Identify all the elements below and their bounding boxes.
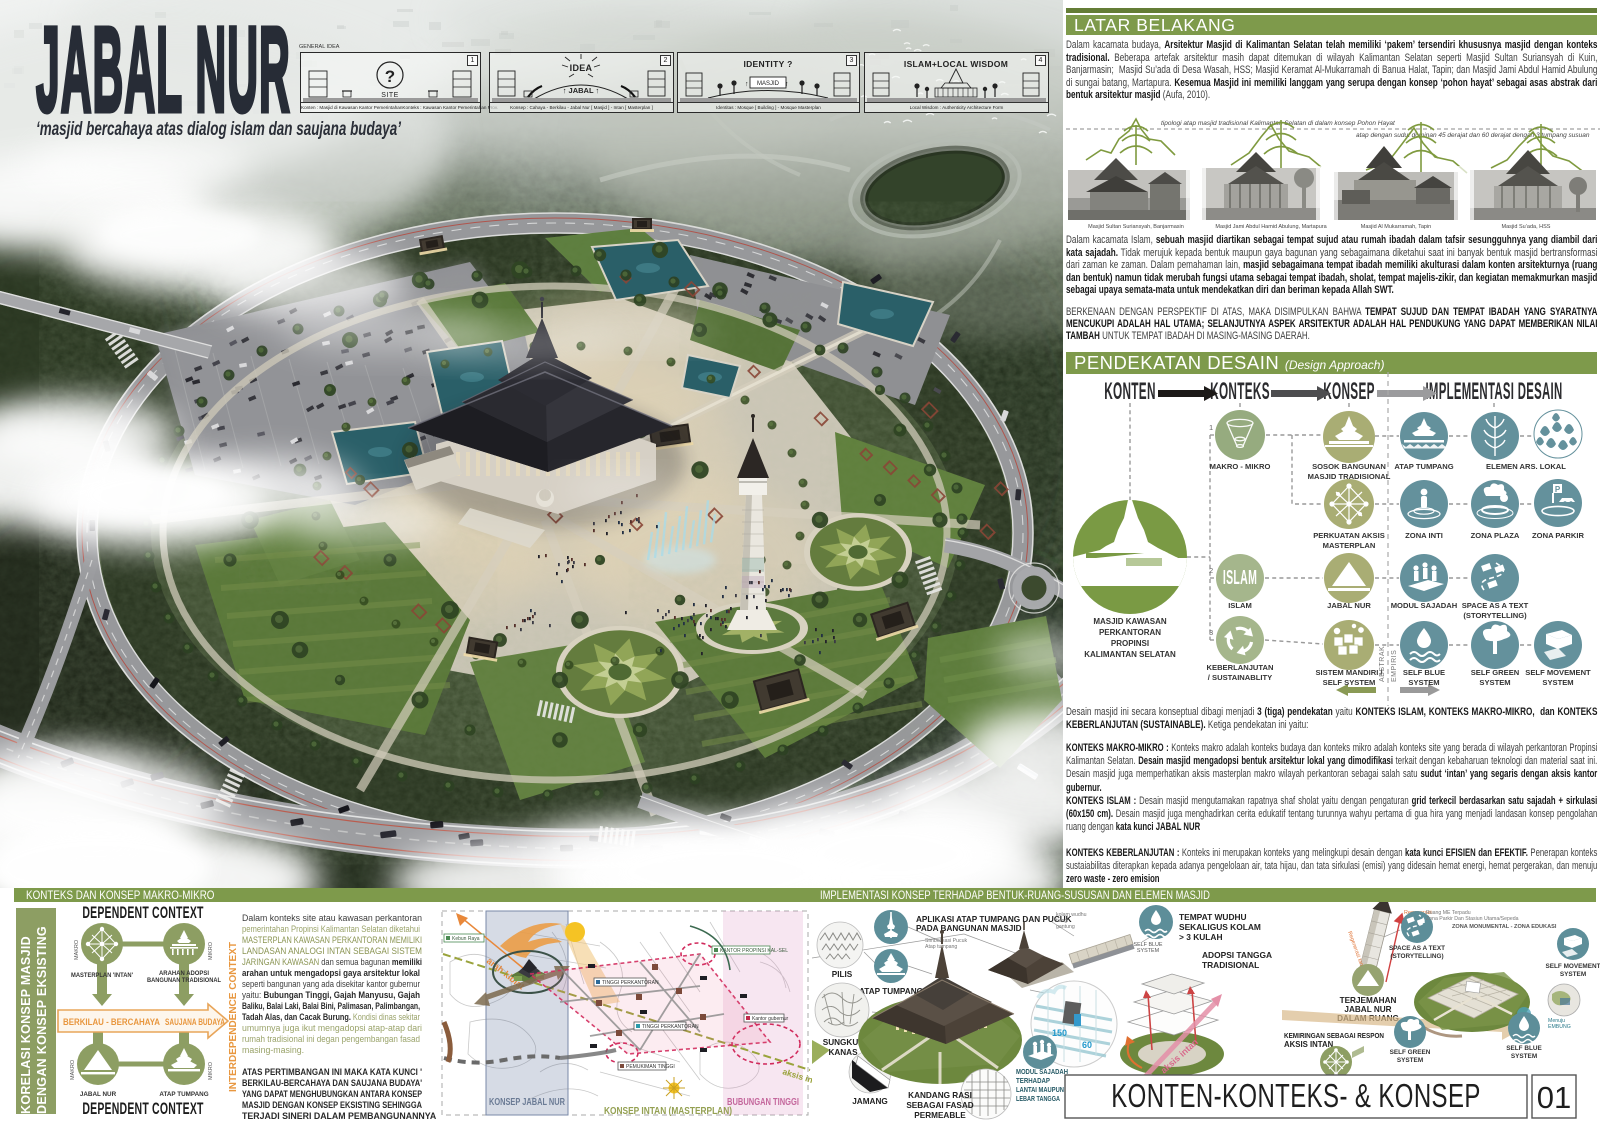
svg-text:3: 3 [1209,628,1213,637]
svg-text:KONTEN: KONTEN [1104,377,1156,404]
svg-text:SISTEM MANDIRI /: SISTEM MANDIRI / [1315,668,1383,677]
svg-text:JABAL NUR: JABAL NUR [80,1091,117,1098]
svg-text:MASJID KAWASAN: MASJID KAWASAN [1093,617,1167,626]
svg-text:SYSTEM: SYSTEM [1397,1057,1423,1064]
svg-text:arahan untuk mengadopsi gaya a: arahan untuk mengadopsi gaya arsitektur … [242,968,420,978]
svg-text:ISLAM: ISLAM [1223,566,1257,589]
svg-text:TEMPAT WUDHU: TEMPAT WUDHU [1179,912,1247,922]
svg-text:EMBUNG: EMBUNG [1548,1024,1571,1030]
svg-text:IMPLEMENTASI DESAIN: IMPLEMENTASI DESAIN [1425,377,1562,404]
svg-text:BERKILAU-BERCAHAYA DAN SAUJANA: BERKILAU-BERCAHAYA DAN SAUJANA BUDAYA' [242,1078,422,1088]
svg-text:LEBAR TANGGA: LEBAR TANGGA [1016,1096,1060,1103]
svg-text:BERKILAU - BERCAHAYA: BERKILAU - BERCAHAYA [63,1017,160,1028]
svg-text:01: 01 [1537,1080,1571,1115]
svg-text:KONTEN-KONTEKS- & KONSEP: KONTEN-KONTEKS- & KONSEP [1111,1078,1481,1115]
svg-text:KONSEP JABAL NUR: KONSEP JABAL NUR [489,1097,566,1108]
svg-text:TRADISIONAL: TRADISIONAL [1202,960,1259,970]
svg-text:MASTERPLAN: MASTERPLAN [1323,541,1376,550]
svg-text:SELF BLUE: SELF BLUE [1403,668,1445,677]
svg-text:SELF SYSTEM: SELF SYSTEM [1323,678,1376,687]
svg-text:yaitu: Bubungan Tinggi, Gajah: yaitu: Bubungan Tinggi, Gajah Manyusu, G… [242,990,420,1000]
svg-text:MAKRO - MIKRO: MAKRO - MIKRO [1210,462,1271,471]
svg-text:ISLAM+LOCAL WISDOM: ISLAM+LOCAL WISDOM [904,59,1008,69]
svg-text:MAKRO: MAKRO [74,939,80,960]
svg-text:Kantor gubernur: Kantor gubernur [752,1016,788,1022]
svg-text:KORELASI KONSEP MASJID: KORELASI KONSEP MASJID [19,936,33,1114]
svg-text:SELF MOVEMENT: SELF MOVEMENT [1525,668,1591,677]
svg-text:ATAS PERTIMBANGAN INI MAKA KAT: ATAS PERTIMBANGAN INI MAKA KATA KUNCI ' [242,1067,422,1077]
svg-text:ZONA INTI: ZONA INTI [1405,531,1443,540]
svg-text:Tadah Alas, dan Cacak Burung.: Tadah Alas, dan Cacak Burung. Kondisi di… [242,1012,420,1022]
svg-text:SEKALIGUS KOLAM: SEKALIGUS KOLAM [1179,922,1261,932]
svg-text:SYSTEM: SYSTEM [1560,971,1586,978]
svg-text:rumah tradisional ini degan pe: rumah tradisional ini degan pengembangan… [242,1034,420,1044]
svg-text:> 3 KULAH: > 3 KULAH [1179,932,1223,942]
svg-text:BUBUNGAN TINGGI: BUBUNGAN TINGGI [727,1097,799,1108]
svg-text:PILIS: PILIS [832,970,853,979]
svg-text:SPACE AS A TEXT: SPACE AS A TEXT [1389,945,1445,952]
svg-text:PROPINSI: PROPINSI [1111,639,1149,648]
svg-text:(STORYTELLING): (STORYTELLING) [1390,953,1443,960]
svg-text:SELF GREEN: SELF GREEN [1390,1049,1431,1056]
svg-text:SYSTEM: SYSTEM [1542,678,1573,687]
svg-text:IDEA: IDEA [570,63,593,73]
svg-text:ZONA MONUMENTAL - ZONA EDUKASI: ZONA MONUMENTAL - ZONA EDUKASI [1452,924,1557,930]
svg-text:ATAP TUMPANG: ATAP TUMPANG [859,987,923,996]
svg-text:SELF MOVEMENT: SELF MOVEMENT [1545,963,1600,970]
svg-text:KANAS: KANAS [828,1048,858,1057]
svg-text:EMPIRIS: EMPIRIS [1391,650,1398,682]
svg-text:KONSEP: KONSEP [1323,377,1375,404]
svg-text:LANTAI MAUPUN: LANTAI MAUPUN [1016,1087,1064,1094]
svg-text:JAMANG: JAMANG [852,1097,887,1106]
svg-text:JABAL NUR: JABAL NUR [1344,1005,1391,1014]
svg-text:KANTOR PROPINSI KAL-SEL: KANTOR PROPINSI KAL-SEL [720,948,788,954]
svg-text:SYSTEM: SYSTEM [1408,678,1439,687]
svg-text:JARINGAN KAWASAN dan semua bag: JARINGAN KAWASAN dan semua bagunan memil… [242,957,422,967]
svg-text:ELEMEN ARS. LOKAL: ELEMEN ARS. LOKAL [1486,462,1566,471]
svg-text:APLIKASI ATAP TUMPANG DAN PUCU: APLIKASI ATAP TUMPANG DAN PUCUK [916,915,1072,924]
svg-text:(STORYTELLING): (STORYTELLING) [1463,611,1527,620]
svg-text:PADA BANGUNAN MASJID: PADA BANGUNAN MASJID [916,924,1022,933]
svg-text:Masjid Sultan Suriansyah, Banj: Masjid Sultan Suriansyah, Banjarmasin [1088,224,1184,230]
svg-text:Masjid Jami Abdul Hamid Abulun: Masjid Jami Abdul Hamid Abulung, Martapu… [1215,224,1327,230]
svg-text:JABAL NUR: JABAL NUR [1327,601,1371,610]
svg-text:PERMEABLE: PERMEABLE [914,1111,966,1120]
svg-text:SELF GREEN: SELF GREEN [1471,668,1520,677]
svg-text:pemerintahan Propinsi Kalimant: pemerintahan Propinsi Kalimantan Selatan… [242,924,420,934]
svg-text:ADOPSI TANGGA: ADOPSI TANGGA [1202,950,1272,960]
svg-text:seperti bangunan yang ada dise: seperti bangunan yang ada disekitar kant… [242,979,420,989]
svg-text:ZONA PLAZA: ZONA PLAZA [1471,531,1520,540]
svg-text:MASJID DENGAN KONSEP EKSISTING: MASJID DENGAN KONSEP EKSISTING SEHINGGA [242,1100,423,1110]
svg-text:umumnya juga ikut mengadopsi a: umumnya juga ikut mengadopsi atap-atap d… [242,1023,422,1033]
svg-text:DENGAN KONSEP EKSISTING: DENGAN KONSEP EKSISTING [35,926,49,1114]
svg-text:gantung: gantung [1056,924,1075,930]
svg-text:MASTERPLAN KAWASAN PERKANTORAN: MASTERPLAN KAWASAN PERKANTORAN MEMILIKI [242,935,422,945]
svg-text:ATAP TUMPANG: ATAP TUMPANG [159,1091,208,1098]
svg-text:SPACE AS A TEXT: SPACE AS A TEXT [1462,601,1529,610]
svg-text:150: 150 [1052,1028,1067,1038]
svg-text:SUNGKUL: SUNGKUL [823,1038,863,1047]
svg-text:AKSIS INTAN: AKSIS INTAN [1284,1040,1334,1049]
svg-text:IDENTITY ?: IDENTITY ? [743,59,792,69]
svg-text:Baliku, Balai Laki, Balai Bini: Baliku, Balai Laki, Balai Bini, Palimasa… [242,1001,420,1011]
svg-text:ISLAM: ISLAM [1228,601,1252,610]
svg-text:MASJID: MASJID [757,81,780,87]
svg-text:↑: ↑ [785,81,789,88]
svg-text:2: 2 [1209,566,1213,575]
svg-text:Kebun Raya: Kebun Raya [452,936,480,942]
svg-text:ZONA PARKIR: ZONA PARKIR [1532,531,1584,540]
svg-text:YANG DAPAT MENGHUBUNGKAN ANTAR: YANG DAPAT MENGHUBUNGKAN ANTARA KONSEP [242,1089,422,1099]
svg-text:atap dengan sudut dominan 45 d: atap dengan sudut dominan 45 derajat dan… [1356,132,1590,139]
svg-text:?: ? [385,67,395,86]
svg-text:DEPENDENT CONTEXT: DEPENDENT CONTEXT [82,902,203,921]
svg-text:MAKRO: MAKRO [70,1059,76,1080]
svg-text:INTERDEPENDENCE CONTEXT: INTERDEPENDENCE CONTEXT [227,941,239,1092]
svg-text:PEMUKIMAN TINGGI: PEMUKIMAN TINGGI [626,1064,675,1070]
svg-text:TERJEMAHAN: TERJEMAHAN [1340,996,1397,1005]
svg-text:SYSTEM: SYSTEM [1511,1053,1537,1060]
svg-text:PERKUATAN AKSIS: PERKUATAN AKSIS [1313,531,1385,540]
svg-text:DEPENDENT CONTEXT: DEPENDENT CONTEXT [82,1098,203,1117]
svg-text:MIKRO: MIKRO [208,941,214,960]
svg-text:↑ JABAL ↑: ↑ JABAL ↑ [563,86,600,95]
svg-text:SITE: SITE [381,92,399,99]
svg-text:SYSTEM: SYSTEM [1137,948,1160,954]
svg-text:SYSTEM: SYSTEM [1479,678,1510,687]
svg-text:MODUL SAJADAH: MODUL SAJADAH [1391,601,1458,610]
svg-text:/ SUSTAINABLITY: / SUSTAINABLITY [1208,673,1272,682]
svg-text:ARAHAN ADOPSI: ARAHAN ADOPSI [159,970,209,977]
svg-text:ATAP TUMPANG: ATAP TUMPANG [1394,462,1453,471]
svg-text:Masjid Al Mukarramah, Tapin: Masjid Al Mukarramah, Tapin [1361,224,1432,230]
svg-text:MASTERPLAN 'INTAN': MASTERPLAN 'INTAN' [71,972,133,979]
svg-text:KEBERLANJUTAN: KEBERLANJUTAN [1207,663,1274,672]
svg-text:1: 1 [1209,423,1213,432]
svg-text:P: P [1555,485,1561,494]
svg-text:MIKRO: MIKRO [208,1061,214,1080]
svg-text:MODUL SAJADAH: MODUL SAJADAH [1016,1069,1068,1076]
svg-text:BANGUNAN TRADISIONAL: BANGUNAN TRADISIONAL [147,977,221,984]
svg-text:SOSOK BANGUNAN: SOSOK BANGUNAN [1312,462,1386,471]
svg-text:Dalam konteks site atau kawasa: Dalam konteks site atau kawasan perkanto… [242,913,422,923]
svg-text:TINGGI PERKANTORAN: TINGGI PERKANTORAN [602,980,659,986]
svg-text:TERJADI SINERI DALAM PEMBANGUN: TERJADI SINERI DALAM PEMBANGUNANNYA [242,1111,437,1121]
svg-text:Zona Parkir Dan Stasiun Utama/: Zona Parkir Dan Stasiun Utama/Sepeda [1426,916,1519,922]
svg-text:SEBAGAI FASAD: SEBAGAI FASAD [906,1101,973,1110]
svg-text:TERHADAP: TERHADAP [1016,1078,1050,1085]
svg-text:KEMIRINGAN SEBAGAI RESPON: KEMIRINGAN SEBAGAI RESPON [1284,1031,1384,1040]
svg-text:masing-masing.: masing-masing. [242,1045,304,1055]
svg-text:PERKANTORAN: PERKANTORAN [1099,628,1161,637]
svg-text:SELF BLUE: SELF BLUE [1506,1045,1542,1052]
svg-text:KALIMANTAN SELATAN: KALIMANTAN SELATAN [1084,650,1176,659]
svg-text:KANDANG RASI: KANDANG RASI [908,1091,972,1100]
svg-text:60: 60 [1082,1040,1092,1050]
svg-text:↑: ↑ [745,81,749,88]
svg-text:Masjid Su’ada, HSS: Masjid Su’ada, HSS [1502,224,1551,230]
svg-text:KONTEKS: KONTEKS [1210,377,1270,404]
svg-text:LANDASAN ANALOGI INTAN SEBAGAI: LANDASAN ANALOGI INTAN SEBAGAI SISTEM [242,946,422,956]
svg-text:TINGGI PERKANTORAN: TINGGI PERKANTORAN [642,1024,699,1030]
svg-text:SAUJANA BUDAYA: SAUJANA BUDAYA [165,1017,225,1028]
svg-text:KONSEP INTAN (MASTERPLAN): KONSEP INTAN (MASTERPLAN) [604,1105,732,1117]
